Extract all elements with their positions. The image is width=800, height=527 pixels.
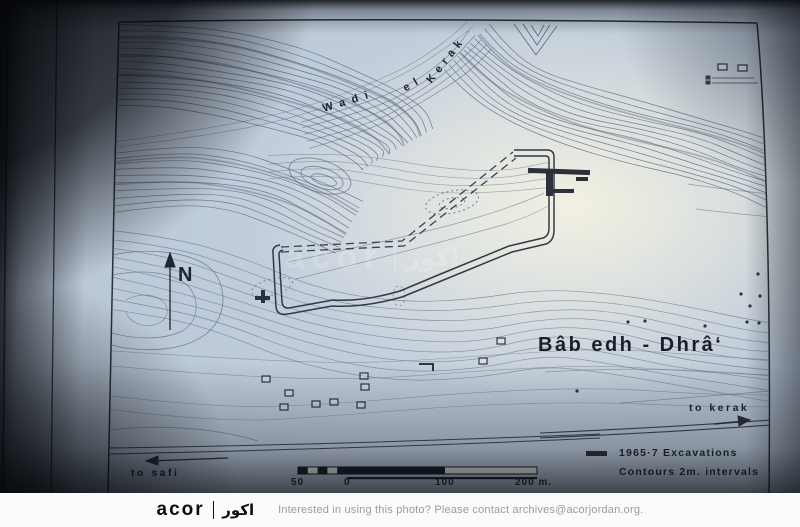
scale-label-0: 0 bbox=[344, 477, 351, 488]
map-photo: Wadi el Kerak Bâb edh - Dhrâ‘ to kerak t… bbox=[0, 0, 800, 495]
excavation-legend-swatch bbox=[586, 451, 607, 456]
sheet-edge-lines bbox=[3, 0, 57, 493]
legend-contours: Contours 2m. intervals bbox=[619, 466, 759, 478]
road-arrow-to-safi bbox=[146, 456, 228, 465]
footer-bar: acor اكور Interested in using this photo… bbox=[0, 493, 800, 527]
legend-excavations: 1965·7 Excavations bbox=[619, 447, 738, 459]
acor-logo-latin: acor bbox=[157, 499, 205, 521]
map-linework bbox=[0, 0, 800, 493]
scale-label-50: 50 bbox=[291, 477, 304, 488]
road-arrow-to-kerak bbox=[714, 416, 750, 426]
north-label: N bbox=[178, 264, 192, 287]
site-title: Bâb edh - Dhrâ‘ bbox=[538, 334, 723, 357]
tiny-annotation-rows bbox=[706, 76, 758, 84]
acor-logo-arabic: اكور bbox=[222, 501, 254, 519]
scale-label-100: 100 bbox=[435, 477, 455, 488]
acor-logo-divider bbox=[213, 501, 215, 519]
slide-photo-of-map: Wadi el Kerak Bâb edh - Dhrâ‘ to kerak t… bbox=[0, 0, 800, 527]
contact-message: Interested in using this photo? Please c… bbox=[278, 504, 643, 516]
map-frame bbox=[108, 20, 769, 493]
acor-logo: acor اكور bbox=[157, 499, 255, 521]
scale-bar bbox=[298, 467, 537, 479]
to-safi-label: to safi bbox=[131, 467, 179, 479]
to-kerak-label: to kerak bbox=[689, 402, 749, 414]
scale-label-200: 200 m. bbox=[515, 477, 552, 488]
